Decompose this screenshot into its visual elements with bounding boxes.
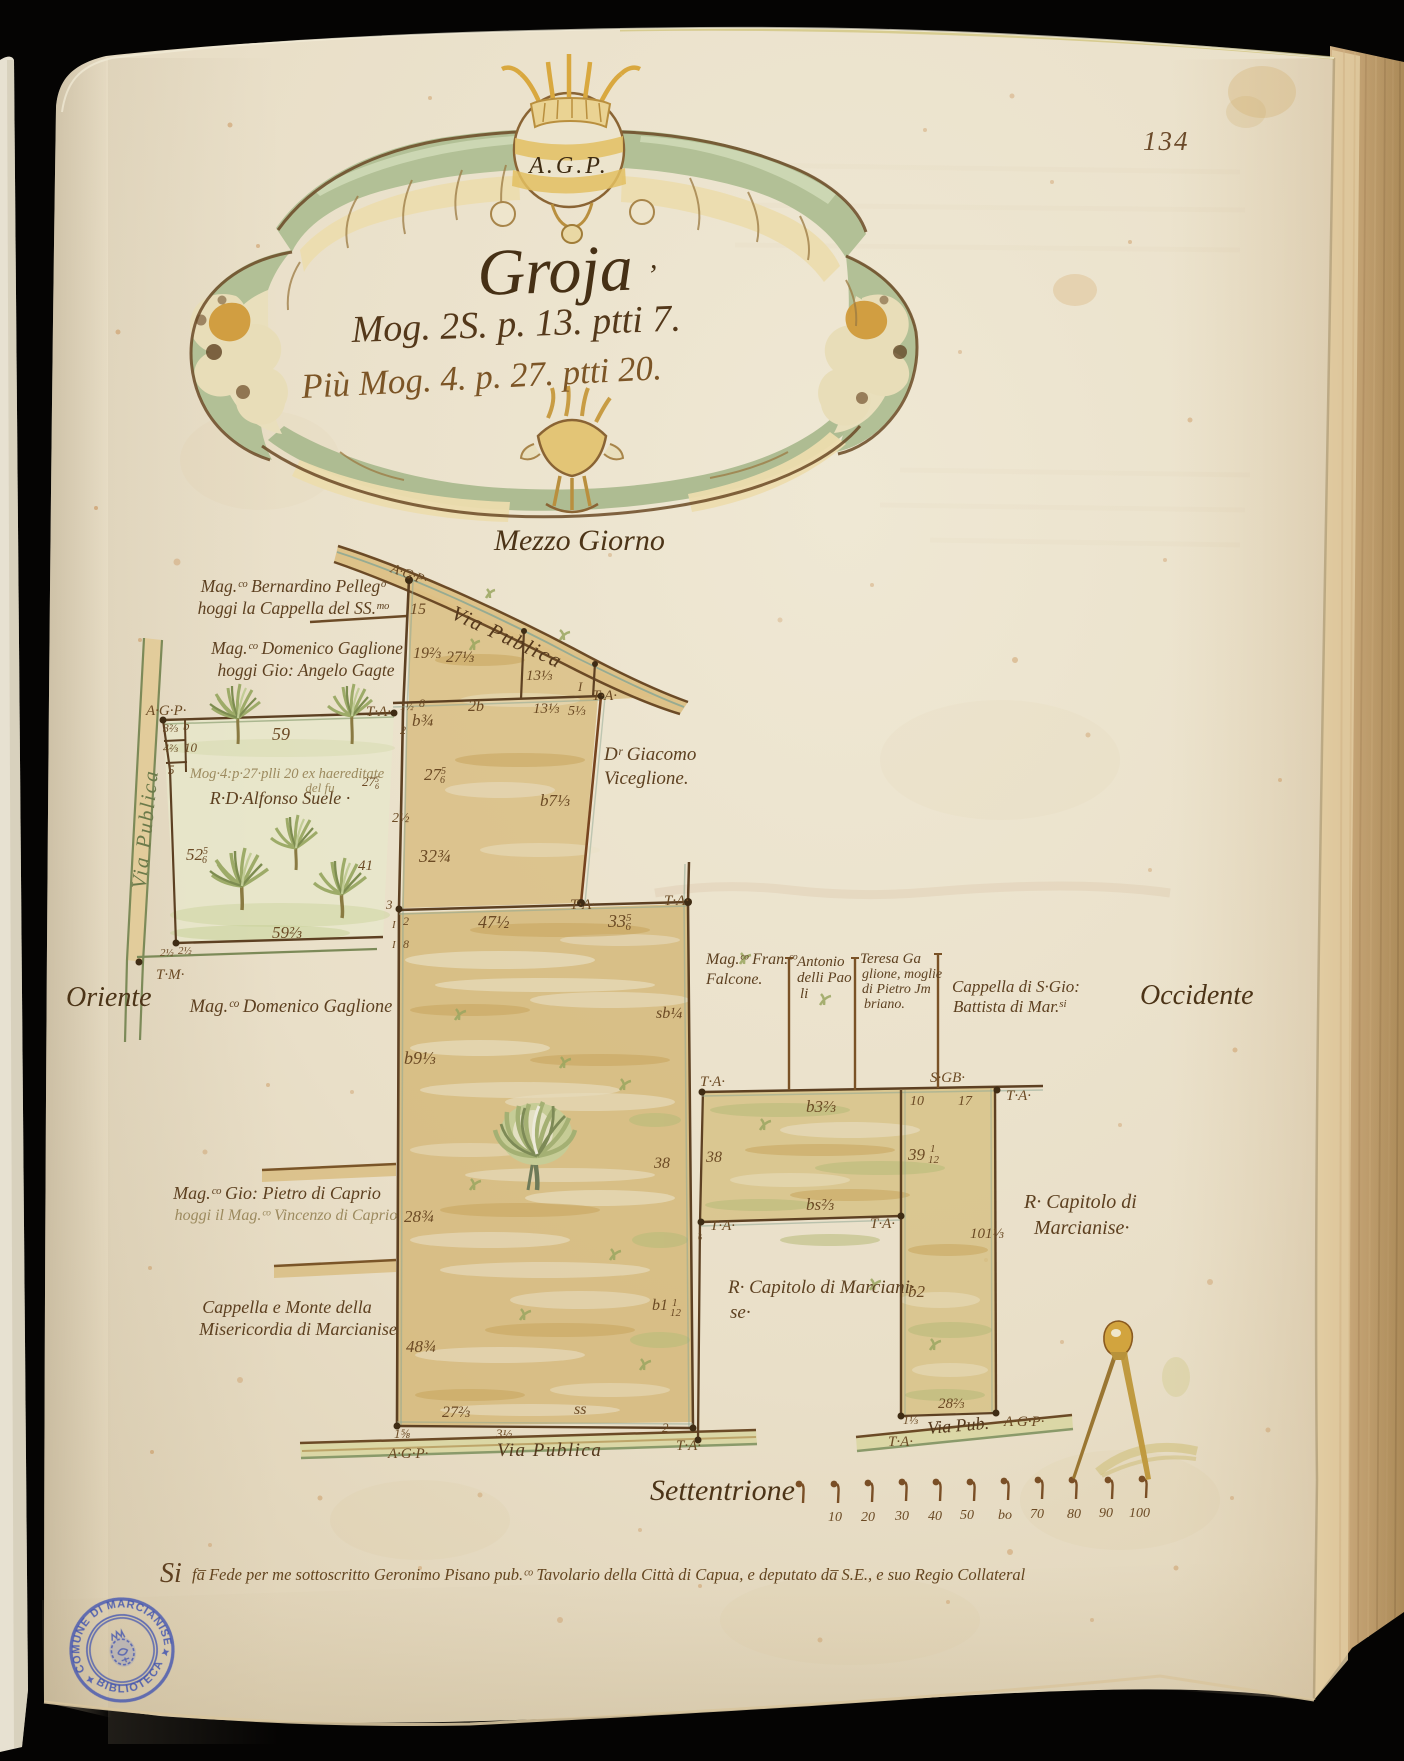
svg-text:Settentrione: Settentrione <box>650 1474 795 1507</box>
svg-text:20: 20 <box>861 1510 875 1525</box>
svg-text:se·: se· <box>730 1302 751 1323</box>
svg-text:8: 8 <box>403 937 409 951</box>
svg-text:28⅔: 28⅔ <box>938 1396 965 1412</box>
svg-text:39: 39 <box>907 1145 926 1164</box>
svg-text:2756: 2756 <box>424 765 446 786</box>
svg-text:70: 70 <box>1030 1507 1044 1522</box>
svg-text:Marcianise·: Marcianise· <box>1033 1217 1129 1239</box>
svg-text:8: 8 <box>419 696 425 710</box>
svg-text:A.G.P.: A.G.P. <box>527 153 609 179</box>
svg-text:2: 2 <box>400 723 406 737</box>
svg-text:b7⅓: b7⅓ <box>540 791 570 810</box>
svg-text:Mezzo Giorno: Mezzo Giorno <box>493 524 665 557</box>
svg-text:12: 12 <box>670 1307 682 1319</box>
svg-text:10: 10 <box>184 740 198 755</box>
svg-text:19⅔: 19⅔ <box>413 645 441 662</box>
svg-text:Antonio: Antonio <box>796 954 845 970</box>
svg-text:59⅔: 59⅔ <box>272 923 302 942</box>
svg-text:T·M·: T·M· <box>156 967 184 983</box>
svg-text:A·G·P·: A·G·P· <box>145 703 186 719</box>
svg-text:T·A·: T·A· <box>664 893 689 909</box>
svg-text:,: , <box>650 242 658 275</box>
svg-text:Dʳ Giacomo: Dʳ Giacomo <box>603 744 696 765</box>
svg-text:48¾: 48¾ <box>406 1337 436 1356</box>
svg-text:bo: bo <box>998 1508 1012 1523</box>
svg-text:3⅔: 3⅔ <box>162 721 178 735</box>
svg-text:R· Capitolo di: R· Capitolo di <box>1023 1191 1137 1213</box>
svg-text:T·A·: T·A· <box>888 1434 913 1450</box>
svg-text:sb¼: sb¼ <box>656 1005 682 1022</box>
svg-text:T·A·: T·A· <box>700 1074 725 1090</box>
svg-text:T·A·: T·A· <box>1006 1088 1031 1104</box>
svg-text:2: 2 <box>662 1420 669 1435</box>
svg-text:30: 30 <box>894 1509 909 1524</box>
svg-text:glione, moglie: glione, moglie <box>862 967 942 982</box>
svg-text:5256: 5256 <box>186 845 208 866</box>
svg-text:Cappella di S·Gio:: Cappella di S·Gio: <box>952 977 1080 996</box>
svg-text:12: 12 <box>928 1154 940 1166</box>
svg-text:1⅓: 1⅓ <box>903 1413 918 1427</box>
svg-text:Misericordia di Marcianise: Misericordia di Marcianise <box>198 1319 397 1339</box>
svg-text:A·G·P·: A·G·P· <box>1003 1414 1044 1430</box>
svg-text:Teresa Ga: Teresa Ga <box>860 951 921 967</box>
svg-text:b1: b1 <box>652 1297 668 1314</box>
svg-text:134: 134 <box>1143 126 1190 156</box>
svg-text:b¾: b¾ <box>412 711 434 730</box>
svg-text:T·A·: T·A· <box>710 1218 735 1234</box>
svg-text:Cappella e Monte della: Cappella e Monte della <box>202 1297 371 1317</box>
svg-text:27⅓: 27⅓ <box>446 649 474 666</box>
svg-text:delli Pao: delli Pao <box>797 970 852 986</box>
svg-text:b3⅔: b3⅔ <box>806 1097 836 1116</box>
svg-text:Mog·4:p·27·plli 20 ex haeredit: Mog·4:p·27·plli 20 ex haereditate <box>189 766 385 782</box>
svg-text:32¾: 32¾ <box>418 846 451 866</box>
svg-text:S·GB·: S·GB· <box>930 1070 965 1086</box>
svg-text:I: I <box>577 679 583 694</box>
svg-text:Mag.ᶜᵒ Domenico Gaglione: Mag.ᶜᵒ Domenico Gaglione <box>210 638 403 658</box>
svg-text:3: 3 <box>385 897 393 912</box>
svg-text:16: 16 <box>698 1227 702 1242</box>
svg-text:28¾: 28¾ <box>404 1207 434 1226</box>
svg-text:Mag.ᶜᵒ Gio: Pietro di Caprio: Mag.ᶜᵒ Gio: Pietro di Caprio <box>172 1183 381 1203</box>
svg-text:bs⅔: bs⅔ <box>806 1195 834 1214</box>
svg-text:T·A·: T·A· <box>870 1216 895 1232</box>
svg-text:T·A·: T·A· <box>676 1438 701 1454</box>
svg-text:41: 41 <box>358 858 373 874</box>
svg-text:li: li <box>800 986 808 1002</box>
svg-text:100: 100 <box>1129 1506 1150 1521</box>
svg-text:80: 80 <box>1067 1507 1081 1522</box>
svg-text:Groja: Groja <box>476 232 634 310</box>
svg-text:3356: 3356 <box>607 911 632 933</box>
svg-text:2b: 2b <box>468 698 484 715</box>
svg-text:40: 40 <box>928 1509 942 1524</box>
svg-text:1⅝: 1⅝ <box>394 1426 411 1441</box>
svg-text:2½: 2½ <box>178 945 192 957</box>
svg-text:Mag.ᶜᵒ Fran.ᶜᵒ: Mag.ᶜᵒ Fran.ᶜᵒ <box>705 951 798 968</box>
svg-text:Si: Si <box>160 1558 182 1589</box>
svg-text:59: 59 <box>272 724 290 744</box>
svg-text:R·D·Alfonso Suele ·: R·D·Alfonso Suele · <box>209 788 350 808</box>
svg-text:T·A·: T·A· <box>570 897 595 913</box>
svg-text:5⅓: 5⅓ <box>568 704 586 719</box>
svg-text:2756: 2756 <box>362 774 379 791</box>
svg-text:4⅔: 4⅔ <box>163 741 178 755</box>
svg-text:Falcone.: Falcone. <box>705 971 762 988</box>
svg-text:Battista di Mar.si: Battista di Mar.si <box>953 997 1067 1016</box>
svg-text:2: 2 <box>403 914 409 928</box>
svg-text:Occidente: Occidente <box>1140 980 1254 1011</box>
svg-text:b: b <box>183 718 190 733</box>
svg-text:15: 15 <box>410 601 426 618</box>
svg-text:2½: 2½ <box>160 947 174 959</box>
svg-text:3½: 3½ <box>495 1426 513 1441</box>
svg-text:Oriente: Oriente <box>66 982 152 1013</box>
svg-text:fa̅ Fede per me sottoscritto G: fa̅ Fede per me sottoscritto Geronimo Pi… <box>192 1565 1026 1584</box>
svg-text:T·A·: T·A· <box>592 688 617 704</box>
svg-text:ss: ss <box>574 1401 586 1418</box>
svg-text:Mag.ᶜᵒ Domenico Gaglione: Mag.ᶜᵒ Domenico Gaglione <box>189 997 393 1017</box>
svg-text:13⅓: 13⅓ <box>526 668 553 684</box>
svg-text:hoggi Gio: Angelo Gagte: hoggi Gio: Angelo Gagte <box>217 660 394 680</box>
svg-text:b2: b2 <box>908 1282 926 1301</box>
svg-text:hoggi il Mag.ᶜᵒ Vincenzo di Ca: hoggi il Mag.ᶜᵒ Vincenzo di Caprio <box>175 1207 398 1224</box>
svg-text:17: 17 <box>958 1094 973 1109</box>
svg-text:38: 38 <box>705 1149 722 1166</box>
svg-text:b9⅓: b9⅓ <box>404 1048 436 1068</box>
svg-text:10: 10 <box>910 1094 924 1109</box>
svg-text:27⅔: 27⅔ <box>442 1404 470 1421</box>
svg-text:di Pietro Jm: di Pietro Jm <box>862 982 931 997</box>
svg-text:Viceglione.: Viceglione. <box>604 768 689 789</box>
svg-text:T·A·: T·A· <box>366 704 391 720</box>
svg-text:5: 5 <box>168 762 175 777</box>
svg-text:2½: 2½ <box>392 811 410 826</box>
svg-text:90: 90 <box>1099 1506 1113 1521</box>
svg-text:Via Publica: Via Publica <box>497 1440 602 1461</box>
svg-text:A·G·P·: A·G·P· <box>387 1446 428 1462</box>
svg-text:R· Capitolo di Marciani·: R· Capitolo di Marciani· <box>727 1277 915 1298</box>
svg-text:hoggi la Cappella del SS.ᵐᵒ: hoggi la Cappella del SS.ᵐᵒ <box>198 598 390 618</box>
svg-text:50: 50 <box>960 1508 974 1523</box>
svg-text:10: 10 <box>828 1510 842 1525</box>
svg-text:briano.: briano. <box>864 997 905 1012</box>
svg-text:Mag.ᶜᵒ Bernardino Pellegᵒ: Mag.ᶜᵒ Bernardino Pellegᵒ <box>200 576 387 596</box>
svg-text:38: 38 <box>653 1155 670 1172</box>
svg-text:47½: 47½ <box>478 912 510 932</box>
svg-text:101⅓: 101⅓ <box>970 1226 1005 1242</box>
svg-text:13⅓: 13⅓ <box>533 701 560 717</box>
